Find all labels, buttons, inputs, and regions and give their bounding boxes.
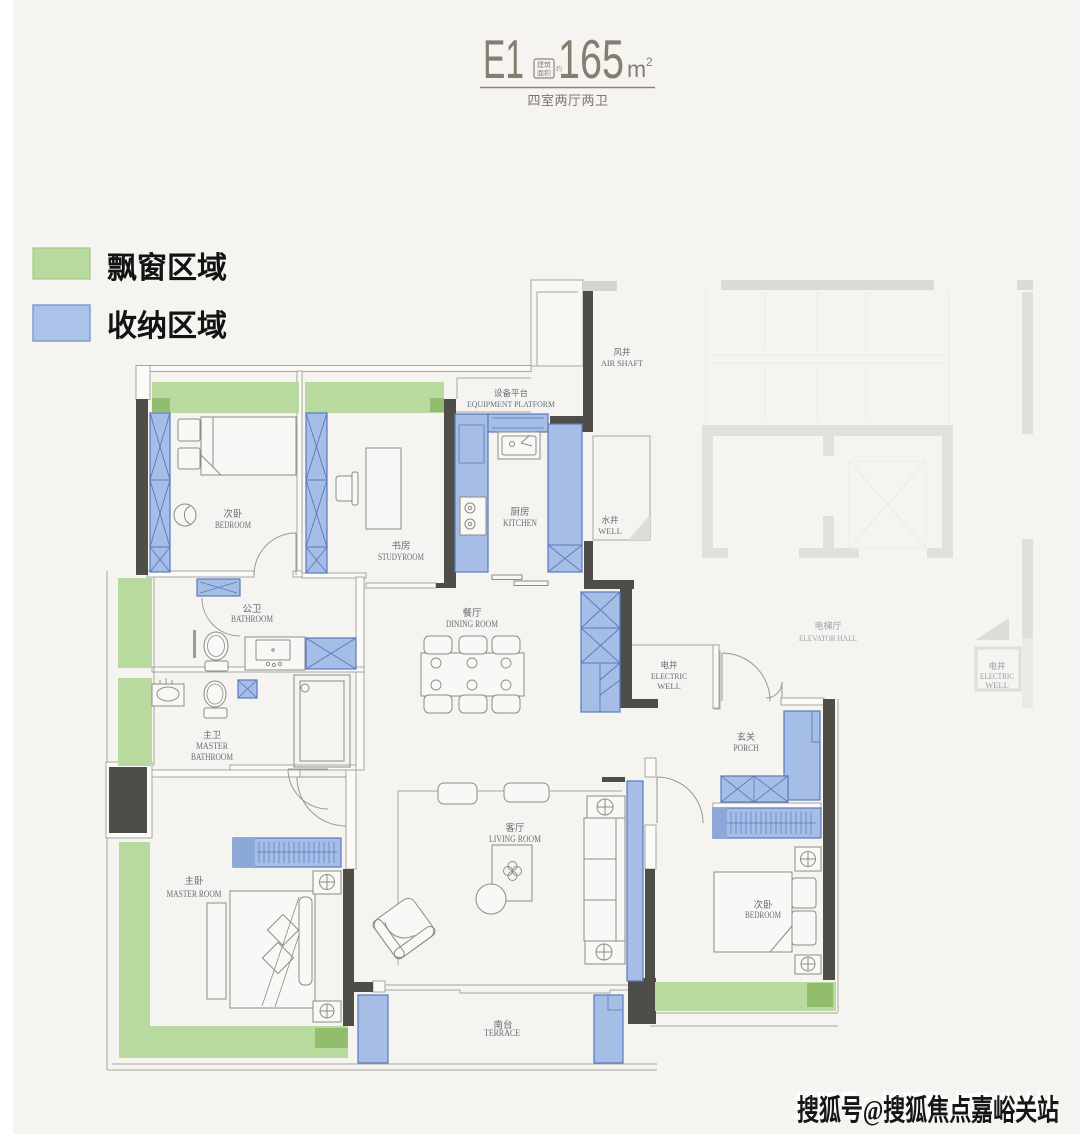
svg-text:公卫: 公卫 [242, 604, 262, 615]
svg-text:BEDROOM: BEDROOM [215, 521, 251, 531]
svg-text:MASTER ROOM: MASTER ROOM [167, 890, 222, 900]
svg-text:水井: 水井 [601, 515, 618, 525]
svg-text:风井: 风井 [613, 347, 630, 357]
svg-text:ELECTRIC: ELECTRIC [651, 671, 687, 681]
svg-text:搜狐号@搜狐焦点嘉峪关站: 搜狐号@搜狐焦点嘉峪关站 [797, 1093, 1059, 1127]
svg-text:主卫: 主卫 [203, 729, 221, 740]
svg-text:收纳区域: 收纳区域 [107, 310, 227, 343]
svg-text:书房: 书房 [391, 540, 410, 552]
svg-text:2: 2 [646, 55, 653, 69]
svg-text:次卧: 次卧 [753, 899, 773, 911]
svg-text:WELL: WELL [598, 526, 622, 536]
svg-text:厨房: 厨房 [510, 506, 529, 518]
svg-text:次卧: 次卧 [223, 508, 243, 520]
svg-text:STUDYROOM: STUDYROOM [378, 553, 424, 563]
svg-text:m: m [627, 56, 646, 82]
svg-text:飘窗区域: 飘窗区域 [107, 251, 227, 285]
svg-text:客厅: 客厅 [505, 822, 525, 834]
svg-text:电梯厅: 电梯厅 [814, 620, 841, 631]
svg-text:AIR SHAFT: AIR SHAFT [601, 358, 644, 368]
svg-text:EQUIPMENT PLATFORM: EQUIPMENT PLATFORM [467, 399, 555, 409]
svg-text:玄关: 玄关 [737, 731, 755, 742]
svg-text:主卧: 主卧 [184, 875, 204, 887]
svg-text:电井: 电井 [988, 661, 1005, 671]
svg-text:ELEVATOR HALL: ELEVATOR HALL [799, 633, 857, 643]
svg-text:E1: E1 [483, 28, 524, 90]
svg-text:WELL: WELL [657, 681, 681, 691]
svg-text:设备平台: 设备平台 [494, 388, 528, 398]
svg-text:BATHROOM: BATHROOM [231, 615, 273, 625]
svg-text:TERRACE: TERRACE [484, 1029, 520, 1039]
svg-text:BEDROOM: BEDROOM [745, 911, 781, 921]
svg-text:建筑: 建筑 [537, 60, 551, 69]
svg-text:电井: 电井 [660, 660, 677, 670]
svg-text:KITCHEN: KITCHEN [503, 519, 537, 529]
svg-text:DINING ROOM: DINING ROOM [446, 620, 498, 630]
svg-text:165: 165 [558, 28, 624, 90]
svg-text:四室两厅两卫: 四室两厅两卫 [527, 93, 608, 108]
svg-text:LIVING ROOM: LIVING ROOM [489, 835, 541, 845]
svg-text:BATHROOM: BATHROOM [191, 752, 233, 762]
svg-text:PORCH: PORCH [734, 743, 759, 753]
svg-text:MASTER: MASTER [196, 741, 228, 751]
svg-text:WELL: WELL [985, 680, 1009, 690]
svg-text:面积: 面积 [537, 69, 551, 78]
svg-text:餐厅: 餐厅 [462, 607, 482, 619]
